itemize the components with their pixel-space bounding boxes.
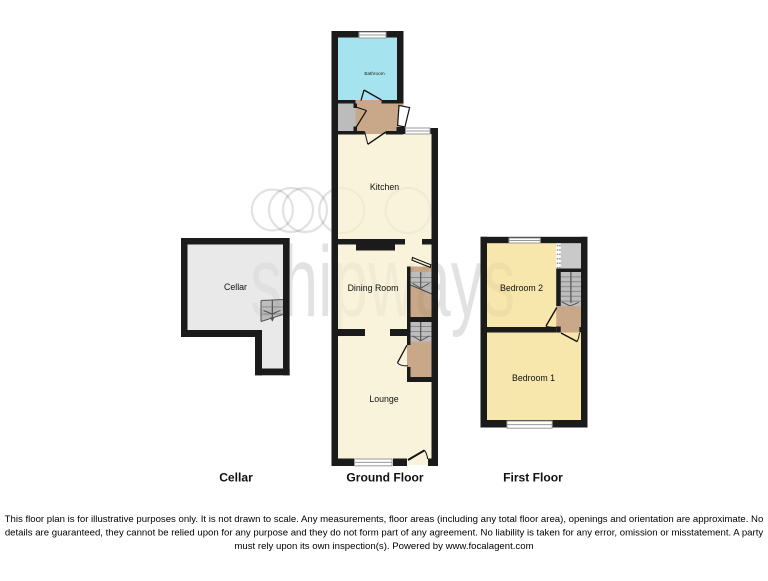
- svg-text:Cellar: Cellar: [219, 471, 253, 485]
- svg-text:Lounge: Lounge: [369, 394, 398, 404]
- svg-text:details are guaranteed, they c: details are guaranteed, they cannot be r…: [5, 528, 764, 539]
- svg-text:Bedroom 1: Bedroom 1: [512, 373, 555, 383]
- svg-text:Bathroom: Bathroom: [364, 71, 384, 76]
- svg-text:Kitchen: Kitchen: [370, 182, 399, 192]
- svg-text:must rely upon its own inspect: must rely upon its own inspection(s). Po…: [234, 541, 533, 552]
- svg-text:Cellar: Cellar: [224, 282, 247, 292]
- svg-text:This floor plan is for illustr: This floor plan is for illustrative purp…: [5, 514, 764, 525]
- svg-text:shipways: shipways: [250, 226, 515, 338]
- svg-text:First Floor: First Floor: [503, 471, 563, 485]
- svg-text:Ground Floor: Ground Floor: [346, 471, 424, 485]
